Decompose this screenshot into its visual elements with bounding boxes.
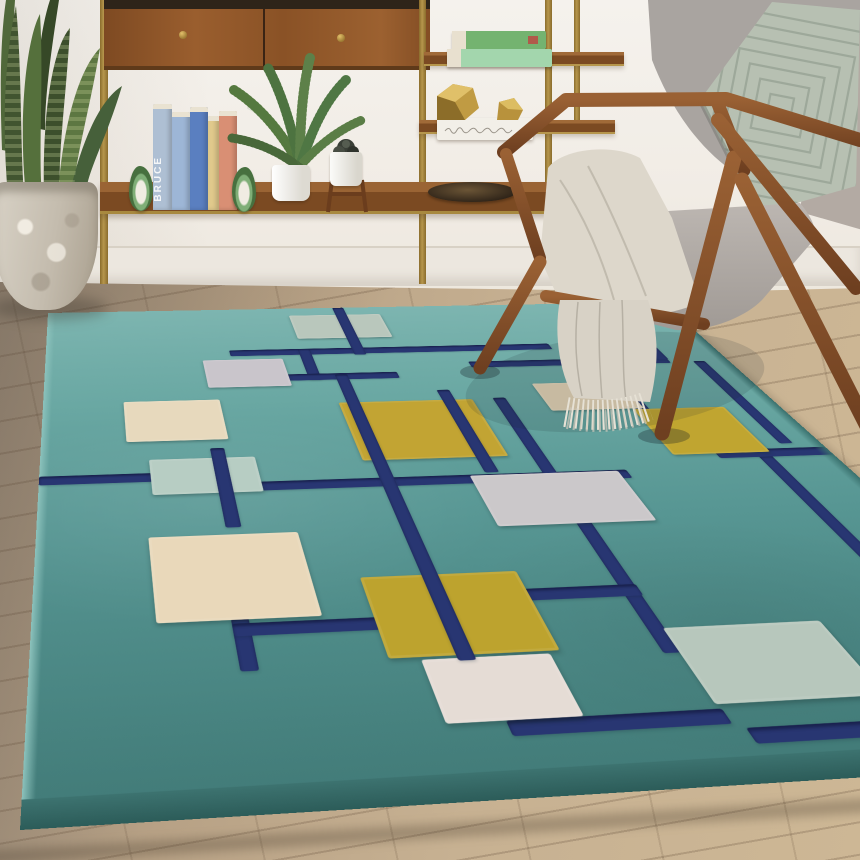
book-pages-top bbox=[172, 112, 190, 117]
book-pages-top bbox=[190, 107, 208, 112]
agate-bookend-left bbox=[129, 166, 153, 211]
agate-bookend-right bbox=[232, 167, 256, 212]
rug-grid-line-over bbox=[210, 448, 242, 528]
book-spine-1: BRUCE bbox=[153, 104, 172, 210]
book-spine-3 bbox=[190, 107, 208, 210]
armchair bbox=[440, 0, 860, 500]
arm-support bbox=[506, 154, 540, 258]
succulent-pot bbox=[330, 152, 362, 186]
book-title: BRUCE bbox=[153, 156, 172, 202]
room-photo: BRUCE bbox=[0, 0, 860, 860]
book-pages-top bbox=[153, 104, 172, 109]
palm-pot bbox=[272, 165, 310, 201]
rug-grid-line-over bbox=[332, 308, 366, 355]
book-spine-2 bbox=[172, 112, 190, 210]
snake-plant bbox=[0, 0, 132, 200]
